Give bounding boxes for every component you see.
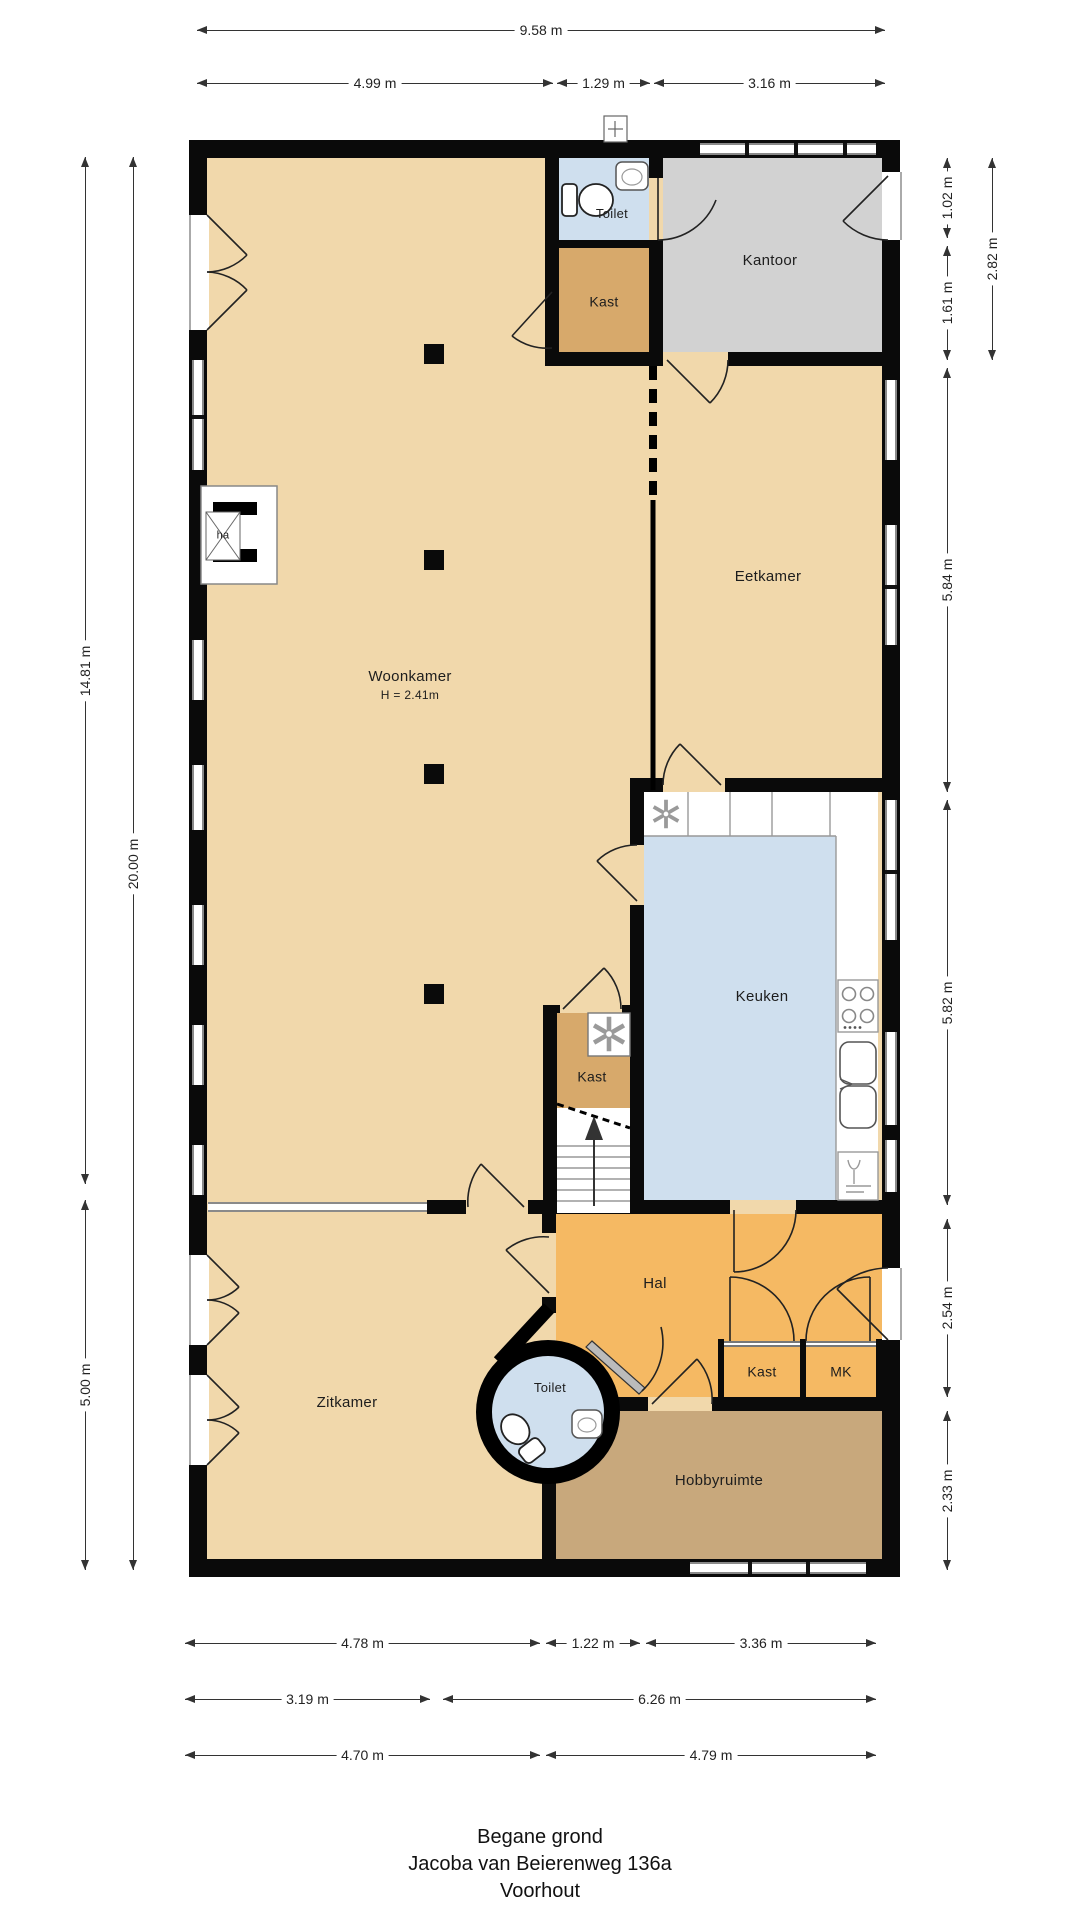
door-swings [207, 176, 888, 1465]
room-label-toilet-hal: Toilet [534, 1380, 566, 1396]
room-label-kast-boven: Kast [589, 294, 618, 311]
room-label-toilet-boven: Toilet [596, 206, 628, 222]
title-floor: Begane grond [0, 1824, 1080, 1851]
sink-icon [572, 1410, 602, 1438]
room-label-eetkamer: Eetkamer [735, 568, 802, 586]
sink-icon [616, 162, 648, 190]
extractor-fan-icon [654, 800, 679, 829]
dishwasher-icon [838, 1152, 878, 1200]
room-label-kantoor: Kantoor [743, 252, 798, 270]
room-label-zitkamer: Zitkamer [317, 1394, 378, 1412]
staircase [557, 1104, 630, 1213]
room-label-keuken: Keuken [736, 988, 789, 1006]
title-city: Voorhout [0, 1878, 1080, 1905]
room-label-hal: Hal [643, 1275, 666, 1293]
room-label-kast-hal: Kast [747, 1364, 776, 1381]
title-block: Begane grond Jacoba van Beierenweg 136a … [0, 1824, 1080, 1905]
kitchen-sink-icon [840, 1042, 876, 1128]
ceiling-height-label: H = 2.41m [381, 688, 439, 702]
fireplace-label: ha [217, 529, 230, 542]
plan-symbols-layer [0, 0, 1080, 1920]
room-label-kast-midden: Kast [577, 1069, 606, 1086]
title-address: Jacoba van Beierenweg 136a [0, 1851, 1080, 1878]
cooktop-icon [838, 980, 878, 1032]
room-label-hobbyruimte: Hobbyruimte [675, 1472, 763, 1490]
fireplace-icon [201, 486, 277, 584]
room-label-mk: MK [830, 1364, 852, 1381]
vent-icon [604, 116, 627, 142]
room-label-woonkamer: Woonkamer H = 2.41m [368, 668, 451, 704]
floorplan-canvas: 9.58 m 4.99 m 1.29 m 3.16 m 14.81 m 20.0… [0, 0, 1080, 1920]
